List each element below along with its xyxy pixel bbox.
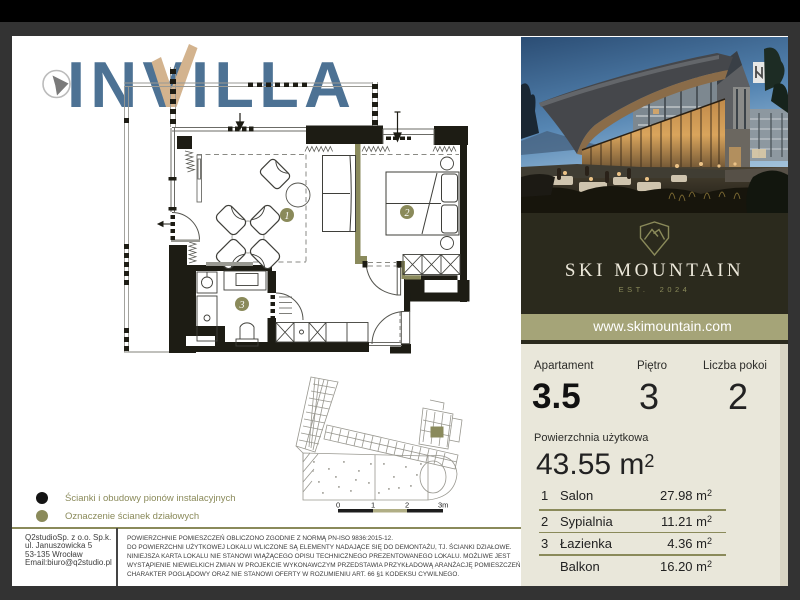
svg-text:2: 2 <box>405 208 410 219</box>
svg-text:3m: 3m <box>438 501 448 510</box>
svg-text:1: 1 <box>285 211 290 222</box>
svg-text:3: 3 <box>239 300 245 311</box>
svg-text:1: 1 <box>371 501 375 510</box>
svg-text:2: 2 <box>405 501 409 510</box>
svg-text:0: 0 <box>336 501 340 510</box>
